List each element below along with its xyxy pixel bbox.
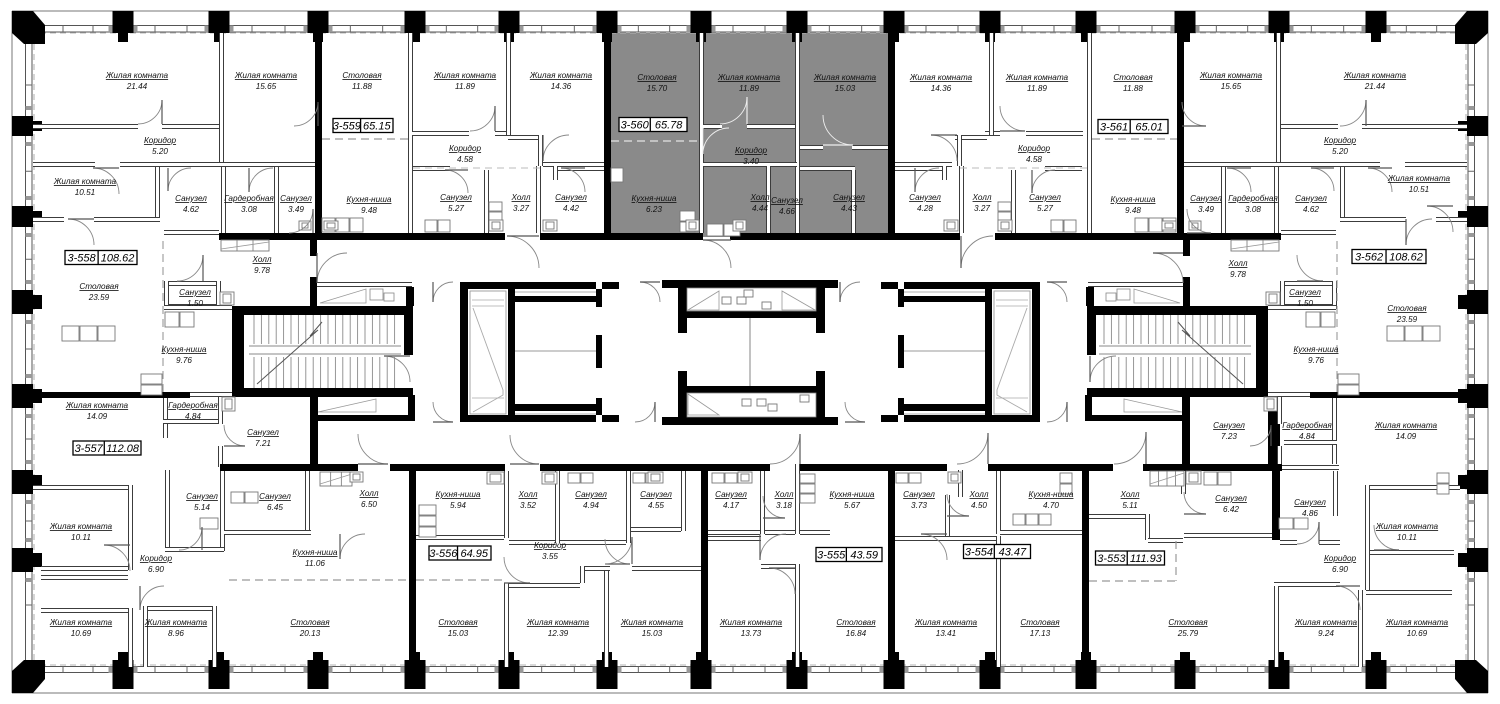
- svg-text:Жилая комната: Жилая комната: [914, 618, 978, 627]
- svg-text:Жилая комната: Жилая комната: [144, 618, 208, 627]
- svg-text:3-553: 3-553: [1097, 553, 1126, 565]
- svg-text:3.52: 3.52: [520, 501, 536, 510]
- svg-text:65.01: 65.01: [1135, 122, 1163, 134]
- svg-text:Гардеробная: Гардеробная: [168, 401, 218, 410]
- svg-text:Холл: Холл: [972, 193, 992, 202]
- svg-text:20.13: 20.13: [299, 629, 321, 638]
- svg-text:Жилая комната: Жилая комната: [105, 71, 169, 80]
- svg-text:Коридор: Коридор: [534, 541, 567, 550]
- svg-text:Холл: Холл: [359, 489, 379, 498]
- svg-text:Санузел: Санузел: [715, 490, 747, 499]
- svg-text:Жилая комната: Жилая комната: [909, 73, 973, 82]
- svg-text:23.59: 23.59: [1396, 315, 1418, 324]
- svg-text:4.66: 4.66: [779, 207, 795, 216]
- svg-text:10.11: 10.11: [1397, 533, 1417, 542]
- svg-text:15.65: 15.65: [1221, 82, 1242, 91]
- svg-text:Санузел: Санузел: [1294, 498, 1326, 507]
- svg-text:5.27: 5.27: [448, 204, 464, 213]
- svg-text:Жилая комната: Жилая комната: [65, 401, 129, 410]
- svg-text:Кухня-ниша: Кухня-ниша: [830, 490, 875, 499]
- svg-text:Холл: Холл: [969, 490, 989, 499]
- svg-text:15.03: 15.03: [835, 84, 856, 93]
- svg-text:Холл: Холл: [1228, 259, 1248, 268]
- svg-text:10.69: 10.69: [71, 629, 92, 638]
- svg-text:Санузел: Санузел: [186, 492, 218, 501]
- svg-text:4.43: 4.43: [841, 204, 857, 213]
- svg-text:Коридор: Коридор: [144, 136, 177, 145]
- svg-text:13.73: 13.73: [741, 629, 762, 638]
- svg-text:Санузел: Санузел: [1289, 288, 1321, 297]
- svg-text:Столовая: Столовая: [290, 618, 330, 627]
- svg-text:1.50: 1.50: [1297, 299, 1313, 308]
- svg-text:11.89: 11.89: [739, 84, 759, 93]
- svg-text:Гардеробная: Гардеробная: [1282, 421, 1332, 430]
- svg-text:Санузел: Санузел: [1213, 421, 1245, 430]
- svg-text:3-560: 3-560: [621, 120, 650, 132]
- svg-text:Кухня-ниша: Кухня-ниша: [293, 548, 338, 557]
- svg-text:4.44: 4.44: [752, 204, 768, 213]
- svg-text:10.51: 10.51: [75, 188, 96, 197]
- svg-text:Гардеробная: Гардеробная: [1228, 194, 1278, 203]
- svg-text:Жилая комната: Жилая комната: [526, 618, 590, 627]
- svg-text:Столовая: Столовая: [1387, 304, 1427, 313]
- svg-text:4.70: 4.70: [1043, 501, 1059, 510]
- svg-text:Жилая комната: Жилая комната: [1199, 71, 1263, 80]
- svg-text:Кухня-ниша: Кухня-ниша: [1111, 195, 1156, 204]
- svg-text:Санузел: Санузел: [575, 490, 607, 499]
- svg-text:3.40: 3.40: [743, 157, 759, 166]
- svg-text:Санузел: Санузел: [909, 193, 941, 202]
- svg-text:Коридор: Коридор: [449, 144, 482, 153]
- svg-text:15.70: 15.70: [647, 84, 668, 93]
- svg-text:Столовая: Столовая: [79, 282, 119, 291]
- svg-text:Санузел: Санузел: [1295, 194, 1327, 203]
- svg-text:64.95: 64.95: [460, 548, 488, 560]
- svg-text:Коридор: Коридор: [735, 146, 768, 155]
- svg-text:4.84: 4.84: [1299, 432, 1315, 441]
- svg-text:Санузел: Санузел: [833, 193, 865, 202]
- svg-text:Холл: Холл: [511, 193, 531, 202]
- svg-text:Кухня-ниша: Кухня-ниша: [162, 345, 207, 354]
- svg-text:3-558: 3-558: [67, 253, 96, 265]
- svg-text:21.44: 21.44: [126, 82, 148, 91]
- svg-text:4.58: 4.58: [457, 155, 473, 164]
- svg-text:Жилая комната: Жилая комната: [719, 618, 783, 627]
- svg-text:Жилая комната: Жилая комната: [433, 71, 497, 80]
- svg-text:Санузел: Санузел: [1215, 494, 1247, 503]
- svg-text:108.62: 108.62: [1389, 252, 1423, 264]
- svg-text:Холл: Холл: [774, 490, 794, 499]
- svg-text:4.42: 4.42: [563, 204, 579, 213]
- svg-text:14.36: 14.36: [551, 82, 572, 91]
- svg-text:Столовая: Столовая: [1168, 618, 1208, 627]
- svg-text:5.14: 5.14: [194, 503, 210, 512]
- svg-text:11.88: 11.88: [352, 82, 372, 91]
- svg-text:4.58: 4.58: [1026, 155, 1042, 164]
- svg-text:16.84: 16.84: [846, 629, 867, 638]
- svg-text:Коридор: Коридор: [1324, 554, 1357, 563]
- svg-text:23.59: 23.59: [88, 293, 110, 302]
- svg-text:Жилая комната: Жилая комната: [1374, 421, 1438, 430]
- svg-text:3.08: 3.08: [1245, 205, 1261, 214]
- svg-text:111.93: 111.93: [1130, 553, 1163, 565]
- svg-text:Санузел: Санузел: [440, 193, 472, 202]
- svg-text:11.88: 11.88: [1123, 84, 1143, 93]
- svg-text:Жилая комната: Жилая комната: [49, 618, 113, 627]
- svg-text:3.27: 3.27: [513, 204, 529, 213]
- svg-text:3.55: 3.55: [542, 552, 558, 561]
- svg-text:4.55: 4.55: [648, 501, 664, 510]
- svg-text:Жилая комната: Жилая комната: [1375, 522, 1439, 531]
- svg-text:7.21: 7.21: [255, 439, 271, 448]
- svg-text:Жилая комната: Жилая комната: [1343, 71, 1407, 80]
- svg-text:Кухня-ниша: Кухня-ниша: [436, 490, 481, 499]
- svg-text:Кухня-ниша: Кухня-ниша: [1294, 345, 1339, 354]
- svg-text:6.90: 6.90: [1332, 565, 1348, 574]
- svg-text:4.50: 4.50: [971, 501, 987, 510]
- svg-text:15.03: 15.03: [642, 629, 663, 638]
- svg-text:25.79: 25.79: [1177, 629, 1199, 638]
- svg-text:Столовая: Столовая: [836, 618, 876, 627]
- svg-text:3-557: 3-557: [75, 443, 104, 455]
- svg-text:Санузел: Санузел: [247, 428, 279, 437]
- svg-text:13.41: 13.41: [936, 629, 957, 638]
- svg-text:Холл: Холл: [750, 193, 770, 202]
- svg-text:Санузел: Санузел: [771, 196, 803, 205]
- svg-text:Жилая комната: Жилая комната: [620, 618, 684, 627]
- svg-text:43.47: 43.47: [999, 547, 1027, 559]
- svg-text:3.49: 3.49: [288, 205, 304, 214]
- svg-text:10.11: 10.11: [71, 533, 91, 542]
- svg-text:4.94: 4.94: [583, 501, 599, 510]
- svg-text:65.15: 65.15: [363, 121, 391, 133]
- svg-text:9.76: 9.76: [176, 356, 192, 365]
- svg-text:3-562: 3-562: [1355, 252, 1383, 264]
- svg-text:Кухня-ниша: Кухня-ниша: [347, 195, 392, 204]
- svg-text:10.69: 10.69: [1407, 629, 1428, 638]
- svg-text:4.28: 4.28: [917, 204, 933, 213]
- svg-text:9.78: 9.78: [254, 266, 270, 275]
- svg-text:3-554: 3-554: [965, 547, 993, 559]
- svg-text:4.86: 4.86: [1302, 509, 1318, 518]
- svg-text:Жилая комната: Жилая комната: [49, 522, 113, 531]
- svg-text:11.06: 11.06: [305, 559, 325, 568]
- svg-text:Столовая: Столовая: [342, 71, 382, 80]
- svg-text:43.59: 43.59: [850, 550, 878, 562]
- svg-text:Санузел: Санузел: [175, 194, 207, 203]
- svg-text:10.51: 10.51: [1409, 185, 1430, 194]
- svg-text:Столовая: Столовая: [438, 618, 478, 627]
- svg-text:15.03: 15.03: [448, 629, 469, 638]
- svg-text:5.20: 5.20: [1332, 147, 1348, 156]
- svg-text:3.73: 3.73: [911, 501, 927, 510]
- svg-text:17.13: 17.13: [1030, 629, 1051, 638]
- svg-text:Санузел: Санузел: [1029, 193, 1061, 202]
- svg-text:11.89: 11.89: [455, 82, 475, 91]
- svg-text:3-555: 3-555: [817, 550, 846, 562]
- svg-text:Жилая комната: Жилая комната: [1294, 618, 1358, 627]
- svg-text:9.48: 9.48: [361, 206, 377, 215]
- svg-text:Санузел: Санузел: [640, 490, 672, 499]
- svg-text:14.09: 14.09: [1396, 432, 1417, 441]
- svg-text:Санузел: Санузел: [179, 288, 211, 297]
- svg-text:15.65: 15.65: [256, 82, 277, 91]
- svg-text:3-559: 3-559: [333, 121, 361, 133]
- svg-text:8.96: 8.96: [168, 629, 184, 638]
- svg-text:5.67: 5.67: [844, 501, 860, 510]
- svg-text:6.42: 6.42: [1223, 505, 1239, 514]
- svg-text:5.94: 5.94: [450, 501, 466, 510]
- svg-text:Коридор: Коридор: [140, 554, 173, 563]
- svg-text:Гардеробная: Гардеробная: [224, 194, 274, 203]
- svg-text:Столовая: Столовая: [1113, 73, 1153, 82]
- svg-text:4.62: 4.62: [183, 205, 199, 214]
- svg-text:9.76: 9.76: [1308, 356, 1324, 365]
- svg-text:9.78: 9.78: [1230, 270, 1246, 279]
- svg-text:3.18: 3.18: [776, 501, 792, 510]
- svg-text:9.48: 9.48: [1125, 206, 1141, 215]
- svg-text:3.08: 3.08: [241, 205, 257, 214]
- svg-text:65.78: 65.78: [655, 120, 683, 132]
- svg-text:Столовая: Столовая: [1020, 618, 1060, 627]
- svg-text:Жилая комната: Жилая комната: [529, 71, 593, 80]
- svg-text:6.50: 6.50: [361, 500, 377, 509]
- svg-text:3.49: 3.49: [1198, 205, 1214, 214]
- svg-text:Холл: Холл: [518, 490, 538, 499]
- svg-text:Жилая комната: Жилая комната: [53, 177, 117, 186]
- svg-text:11.89: 11.89: [1027, 84, 1047, 93]
- svg-text:Кухня-ниша: Кухня-ниша: [632, 194, 677, 203]
- svg-text:3-561: 3-561: [1100, 122, 1128, 134]
- svg-text:Санузел: Санузел: [259, 492, 291, 501]
- svg-text:Жилая комната: Жилая комната: [1385, 618, 1449, 627]
- svg-text:Жилая комната: Жилая комната: [234, 71, 298, 80]
- svg-text:Коридор: Коридор: [1018, 144, 1051, 153]
- svg-text:Санузел: Санузел: [903, 490, 935, 499]
- svg-text:Холл: Холл: [1120, 490, 1140, 499]
- svg-text:108.62: 108.62: [101, 253, 135, 265]
- svg-text:4.17: 4.17: [723, 501, 739, 510]
- svg-text:7.23: 7.23: [1221, 432, 1237, 441]
- svg-text:Жилая комната: Жилая комната: [717, 73, 781, 82]
- svg-text:Жилая комната: Жилая комната: [813, 73, 877, 82]
- svg-text:Столовая: Столовая: [637, 73, 677, 82]
- svg-text:5.11: 5.11: [1122, 501, 1137, 510]
- svg-text:5.27: 5.27: [1037, 204, 1053, 213]
- svg-text:14.36: 14.36: [931, 84, 952, 93]
- svg-text:14.09: 14.09: [87, 412, 108, 421]
- svg-text:3-556: 3-556: [429, 548, 458, 560]
- svg-text:Кухня-ниша: Кухня-ниша: [1029, 490, 1074, 499]
- svg-text:Санузел: Санузел: [1190, 194, 1222, 203]
- svg-text:Коридор: Коридор: [1324, 136, 1357, 145]
- svg-text:Санузел: Санузел: [280, 194, 312, 203]
- svg-text:5.20: 5.20: [152, 147, 168, 156]
- svg-text:Жилая комната: Жилая комната: [1005, 73, 1069, 82]
- svg-text:4.62: 4.62: [1303, 205, 1319, 214]
- svg-text:Холл: Холл: [252, 255, 272, 264]
- svg-text:21.44: 21.44: [1364, 82, 1386, 91]
- svg-text:Санузел: Санузел: [555, 193, 587, 202]
- svg-text:6.45: 6.45: [267, 503, 283, 512]
- svg-text:4.84: 4.84: [185, 412, 201, 421]
- svg-text:6.23: 6.23: [646, 205, 662, 214]
- svg-text:112.08: 112.08: [106, 443, 140, 455]
- svg-text:1.50: 1.50: [187, 299, 203, 308]
- svg-text:12.39: 12.39: [548, 629, 569, 638]
- svg-text:3.27: 3.27: [974, 204, 990, 213]
- svg-text:Жилая комната: Жилая комната: [1387, 174, 1451, 183]
- svg-text:9.24: 9.24: [1318, 629, 1334, 638]
- svg-text:6.90: 6.90: [148, 565, 164, 574]
